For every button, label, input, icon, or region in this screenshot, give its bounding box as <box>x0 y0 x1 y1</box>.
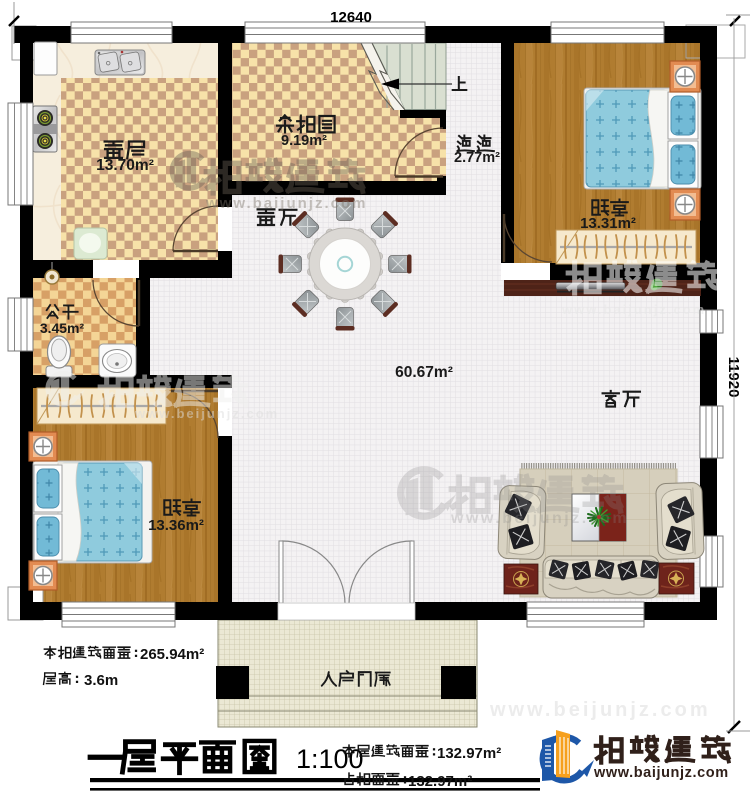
svg-text:3.6m: 3.6m <box>84 672 118 689</box>
svg-text:13.70m²: 13.70m² <box>96 157 154 174</box>
svg-text:2.77m²: 2.77m² <box>454 150 500 166</box>
svg-text:60.67m²: 60.67m² <box>395 364 453 381</box>
svg-text:www.beijunjz.com: www.beijunjz.com <box>450 510 629 527</box>
svg-text:www.baijunjz.com: www.baijunjz.com <box>593 765 729 781</box>
svg-text:13.36m²: 13.36m² <box>148 517 204 534</box>
svg-text:www.baijunjz.com: www.baijunjz.com <box>205 195 367 212</box>
svg-text:13.31m²: 13.31m² <box>580 215 636 232</box>
svg-text:www.beijunjz.com: www.beijunjz.com <box>489 699 711 721</box>
svg-text:11920: 11920 <box>725 357 742 398</box>
svg-text:www.baijunjz.com: www.baijunjz.com <box>561 302 706 317</box>
svg-text:9.19m²: 9.19m² <box>281 133 327 149</box>
svg-text:3.45m²: 3.45m² <box>40 320 85 336</box>
svg-text:12640: 12640 <box>330 9 372 26</box>
svg-text:132.97m²: 132.97m² <box>437 745 501 762</box>
svg-text:265.94m²: 265.94m² <box>140 646 204 663</box>
svg-text:www.beijunjz.com: www.beijunjz.com <box>134 406 279 421</box>
svg-text:1:100: 1:100 <box>296 744 364 774</box>
svg-text:132.97m²: 132.97m² <box>408 773 472 790</box>
